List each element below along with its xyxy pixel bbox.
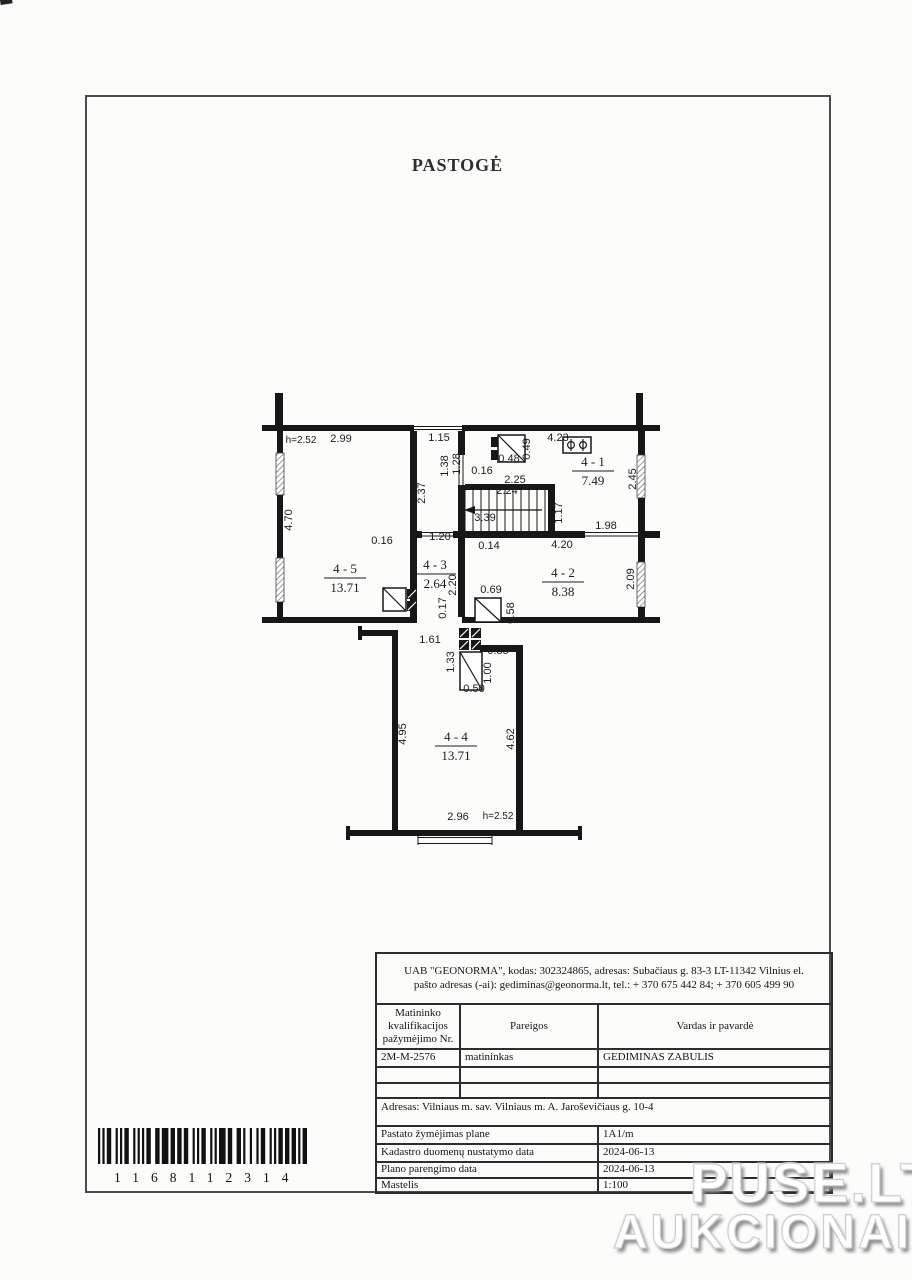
room-area-label: 7.49 <box>582 473 605 488</box>
cert-no-cell: 2M-M-2576 <box>376 1049 460 1067</box>
detail-value-building-marking: 1A1/m <box>598 1126 832 1144</box>
plan-dimension-label: 2.37 <box>416 482 428 503</box>
barcode-bar <box>184 1128 188 1164</box>
chimney-symbol-room44 <box>459 628 482 690</box>
company-info-cell: UAB "GEONORMA", kodas: 302324865, adresa… <box>376 953 832 1004</box>
room-number-label: 4 - 3 <box>423 557 447 572</box>
room-number-label: 4 - 4 <box>444 729 468 744</box>
empty-cell <box>460 1067 598 1083</box>
window-hatch <box>276 558 284 602</box>
barcode-bar <box>243 1128 245 1164</box>
plan-dimension-label: 2.96 <box>447 811 468 823</box>
room-number-label: 4 - 1 <box>581 454 605 469</box>
plan-dimension-label: 1.15 <box>428 432 449 444</box>
plan-dimension-label: 4.70 <box>283 509 295 530</box>
empty-cell <box>598 1067 832 1083</box>
room-area-label: 13.71 <box>441 748 470 763</box>
plan-dimension-label: 0.16 <box>471 465 492 477</box>
plan-dimension-label: 0.17 <box>437 597 449 618</box>
barcode-bar <box>278 1128 282 1164</box>
plan-dimension-label: 1.61 <box>419 634 440 646</box>
barcode-bar <box>237 1128 241 1164</box>
room-area-label: 8.38 <box>552 584 575 599</box>
barcode-bar <box>256 1128 258 1164</box>
plan-dimension-label: 2.09 <box>625 568 637 589</box>
barcode-bar <box>201 1128 205 1164</box>
plan-dimension-label: 2.99 <box>330 433 351 445</box>
barcode-bar <box>142 1128 144 1164</box>
scanned-document-page: { "page": { "title": "PASTOGĖ", "waterma… <box>0 0 912 1280</box>
barcode-bar <box>197 1128 199 1164</box>
room-area-label: 13.71 <box>330 580 359 595</box>
barcode-bar <box>303 1128 307 1164</box>
plan-dimension-label: 0.85 <box>487 645 508 657</box>
barcode-bar <box>285 1128 289 1164</box>
plan-dimension-label: 0.58 <box>505 602 517 623</box>
column-header-cert-no: Matininko kvalifikacijos pažymėjimo Nr. <box>376 1004 460 1049</box>
address-cell: Adresas: Vilniaus m. sav. Vilniaus m. A.… <box>376 1098 832 1126</box>
window-hatch <box>276 453 284 495</box>
barcode-bar <box>116 1128 118 1164</box>
plan-dimension-label: 1.28 <box>451 453 463 474</box>
plan-dimension-label: 4.20 <box>551 539 572 551</box>
plan-dimension-label: 0.49 <box>521 438 533 459</box>
column-header-position: Pareigos <box>460 1004 598 1049</box>
plan-dimension-label: 1.33 <box>445 651 457 672</box>
room-number-label: 4 - 5 <box>333 561 357 576</box>
empty-cell <box>598 1083 832 1098</box>
barcode-bar <box>107 1128 111 1164</box>
plan-dimension-label: 2.24 <box>496 485 517 497</box>
surveyor-name-cell: GEDIMINAS ZABULIS <box>598 1049 832 1067</box>
plan-dimension-label: 0.16 <box>371 535 392 547</box>
barcode-bar <box>298 1128 300 1164</box>
empty-cell <box>460 1083 598 1098</box>
room-area-label: 2.64 <box>424 576 447 591</box>
barcode-bar <box>270 1128 272 1164</box>
plan-dimension-label: 1.98 <box>595 520 616 532</box>
plan-dimension-label: 2.45 <box>627 468 639 489</box>
detail-label-scale: Mastelis <box>376 1178 598 1193</box>
plan-dimension-label: h=2.52 <box>483 811 514 822</box>
watermark-aukcionai: AUKCIONAI <box>613 1205 912 1260</box>
plan-dimension-label: 1.17 <box>553 502 565 523</box>
barcode-bar <box>155 1128 159 1164</box>
detail-label-plan-date: Plano parengimo data <box>376 1162 598 1178</box>
plan-dimension-label: 1.00 <box>482 662 494 683</box>
barcode-bar <box>292 1128 296 1164</box>
barcode-digits: 1168112314 <box>98 1170 313 1186</box>
barcode-bar <box>120 1128 122 1164</box>
barcode-bar <box>138 1128 140 1164</box>
barcode-bar <box>193 1128 195 1164</box>
column-header-name: Vardas ir pavardė <box>598 1004 832 1049</box>
plan-dimension-label: 0.50 <box>463 683 484 695</box>
barcode-bar <box>219 1128 226 1164</box>
window-hatch <box>637 562 645 607</box>
barcode-bar <box>102 1128 104 1164</box>
barcode-bar <box>274 1128 276 1164</box>
barcode-bar <box>162 1128 169 1164</box>
barcode-bars <box>98 1128 307 1164</box>
barcode-bar <box>124 1128 128 1164</box>
plan-dimension-label: 1.20 <box>429 531 450 543</box>
empty-cell <box>376 1067 460 1083</box>
plan-dimension-label: 4.62 <box>505 728 517 749</box>
detail-label-building-marking: Pastato žymėjimas plane <box>376 1126 598 1144</box>
plan-dimension-label: 0.14 <box>478 540 499 552</box>
plan-dimension-label: 1.38 <box>439 455 451 476</box>
barcode-bar <box>250 1128 252 1164</box>
plan-dimension-label: 3.39 <box>474 512 495 524</box>
plan-dimension-label: 4.95 <box>397 723 409 744</box>
barcode-bar <box>98 1128 100 1164</box>
floor-plan-drawing: h=2.522.994.700.161.152.371.381.280.160.… <box>255 380 675 850</box>
barcode-bar <box>215 1128 217 1164</box>
barcode-bar <box>146 1128 150 1164</box>
room-number-label: 4 - 2 <box>551 565 575 580</box>
empty-cell <box>376 1083 460 1098</box>
chimney-symbol-room42 <box>475 598 501 622</box>
barcode-bar <box>177 1128 181 1164</box>
barcode-bar <box>261 1128 265 1164</box>
barcode-bar <box>171 1128 175 1164</box>
barcode-bars-image <box>98 1128 307 1164</box>
scan-corner-artifact <box>0 0 13 5</box>
barcode-bar <box>228 1128 232 1164</box>
page-title: PASTOGĖ <box>85 155 830 176</box>
barcode-bar <box>133 1128 135 1164</box>
barcode: 1168112314 <box>98 1128 313 1186</box>
plan-dimension-label: 4.23 <box>547 432 568 444</box>
plan-dimension-label: 0.48 <box>498 453 519 465</box>
plan-dimension-label: 2.20 <box>447 574 459 595</box>
barcode-bar <box>210 1128 212 1164</box>
position-cell: matininkas <box>460 1049 598 1067</box>
plan-dimension-label: h=2.52 <box>286 435 317 446</box>
detail-label-cadastre-date: Kadastro duomenų nustatymo data <box>376 1144 598 1162</box>
plan-dimension-label: 0.69 <box>480 584 501 596</box>
